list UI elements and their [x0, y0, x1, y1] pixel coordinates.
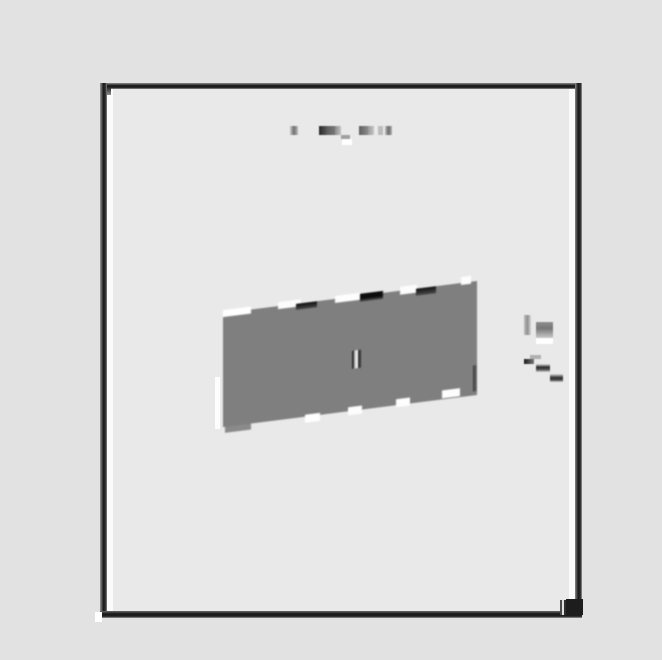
- frame-border-left: [100, 83, 107, 618]
- top-edge-chip-dark: [360, 291, 383, 302]
- panel-right-edge-shade: [473, 365, 477, 392]
- top-edge-chip-white: [461, 276, 471, 285]
- frame-border-top: [100, 83, 582, 89]
- inner-margin-left: [107, 89, 113, 611]
- top-edge-chip-white: [400, 285, 417, 295]
- viewer-canvas: [0, 0, 662, 660]
- corner-marker-square: [566, 599, 583, 615]
- panel-center-slot: [352, 350, 361, 369]
- panel-left-white-strip: [215, 377, 220, 429]
- bottom-left-notch: [95, 612, 102, 622]
- frame-border-bottom: [100, 611, 582, 618]
- top-left-inner-tick: [107, 88, 111, 95]
- frame-border-right: [575, 83, 582, 618]
- bottom-edge-notch: [442, 388, 460, 398]
- top-edge-chip-dark: [416, 286, 436, 296]
- top-edge-chip-dark: [296, 301, 317, 310]
